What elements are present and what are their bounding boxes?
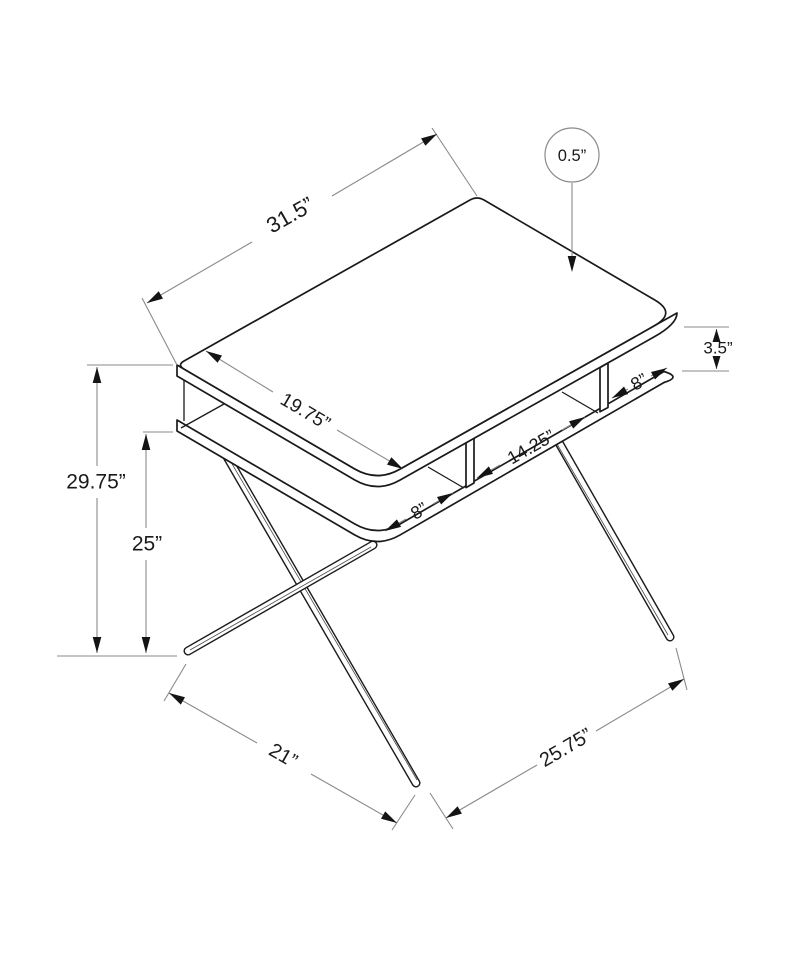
dim-label-clearance: 25” xyxy=(132,533,162,556)
ext-line-top-width-right xyxy=(432,128,477,196)
diagram-canvas: 31.5” 0.5” 3.5” 19.75” 8” 14.25” 8” xyxy=(0,0,800,971)
desk-body xyxy=(177,198,677,542)
arrowhead xyxy=(446,806,462,818)
leg-right-front-highlight xyxy=(557,444,668,635)
ext-line-side-span-right xyxy=(392,795,415,830)
arrowhead xyxy=(142,637,151,653)
arrowhead xyxy=(93,637,102,653)
cubby-divider-left-base-edge xyxy=(428,467,464,488)
leg-right-front-fill xyxy=(558,441,670,637)
arrowhead xyxy=(93,367,102,383)
dim-label-overall-height: 29.75” xyxy=(66,471,126,494)
desktop-top-surface xyxy=(180,198,665,476)
cubby-divider-left xyxy=(466,438,474,488)
arrowhead xyxy=(668,679,684,691)
dim-label-side-span: 21” xyxy=(265,739,301,772)
dim-label-top-thickness: 0.5” xyxy=(558,147,586,165)
dim-label-cubby-middle: 14.25” xyxy=(504,426,558,468)
arrowhead xyxy=(169,693,185,705)
desk-legs xyxy=(188,441,670,783)
arrowhead xyxy=(421,134,437,146)
desk-dimension-diagram: 31.5” 0.5” 3.5” 19.75” 8” 14.25” 8” xyxy=(0,0,800,971)
ext-line-top-width-left xyxy=(142,298,177,365)
dim-label-top-width: 31.5” xyxy=(262,192,318,238)
dim-label-cubby-height: 3.5” xyxy=(703,339,733,358)
arrowhead xyxy=(142,434,151,450)
cubby-divider-right xyxy=(600,363,608,412)
arrowhead xyxy=(147,291,163,303)
arrowhead xyxy=(713,356,721,369)
leg-left-front-highlight xyxy=(190,547,371,650)
ext-line-front-span-left xyxy=(430,793,453,829)
dim-label-front-span: 25.75” xyxy=(536,724,596,772)
cubby-divider-right-base-edge xyxy=(562,392,598,413)
arrowhead xyxy=(381,811,397,823)
